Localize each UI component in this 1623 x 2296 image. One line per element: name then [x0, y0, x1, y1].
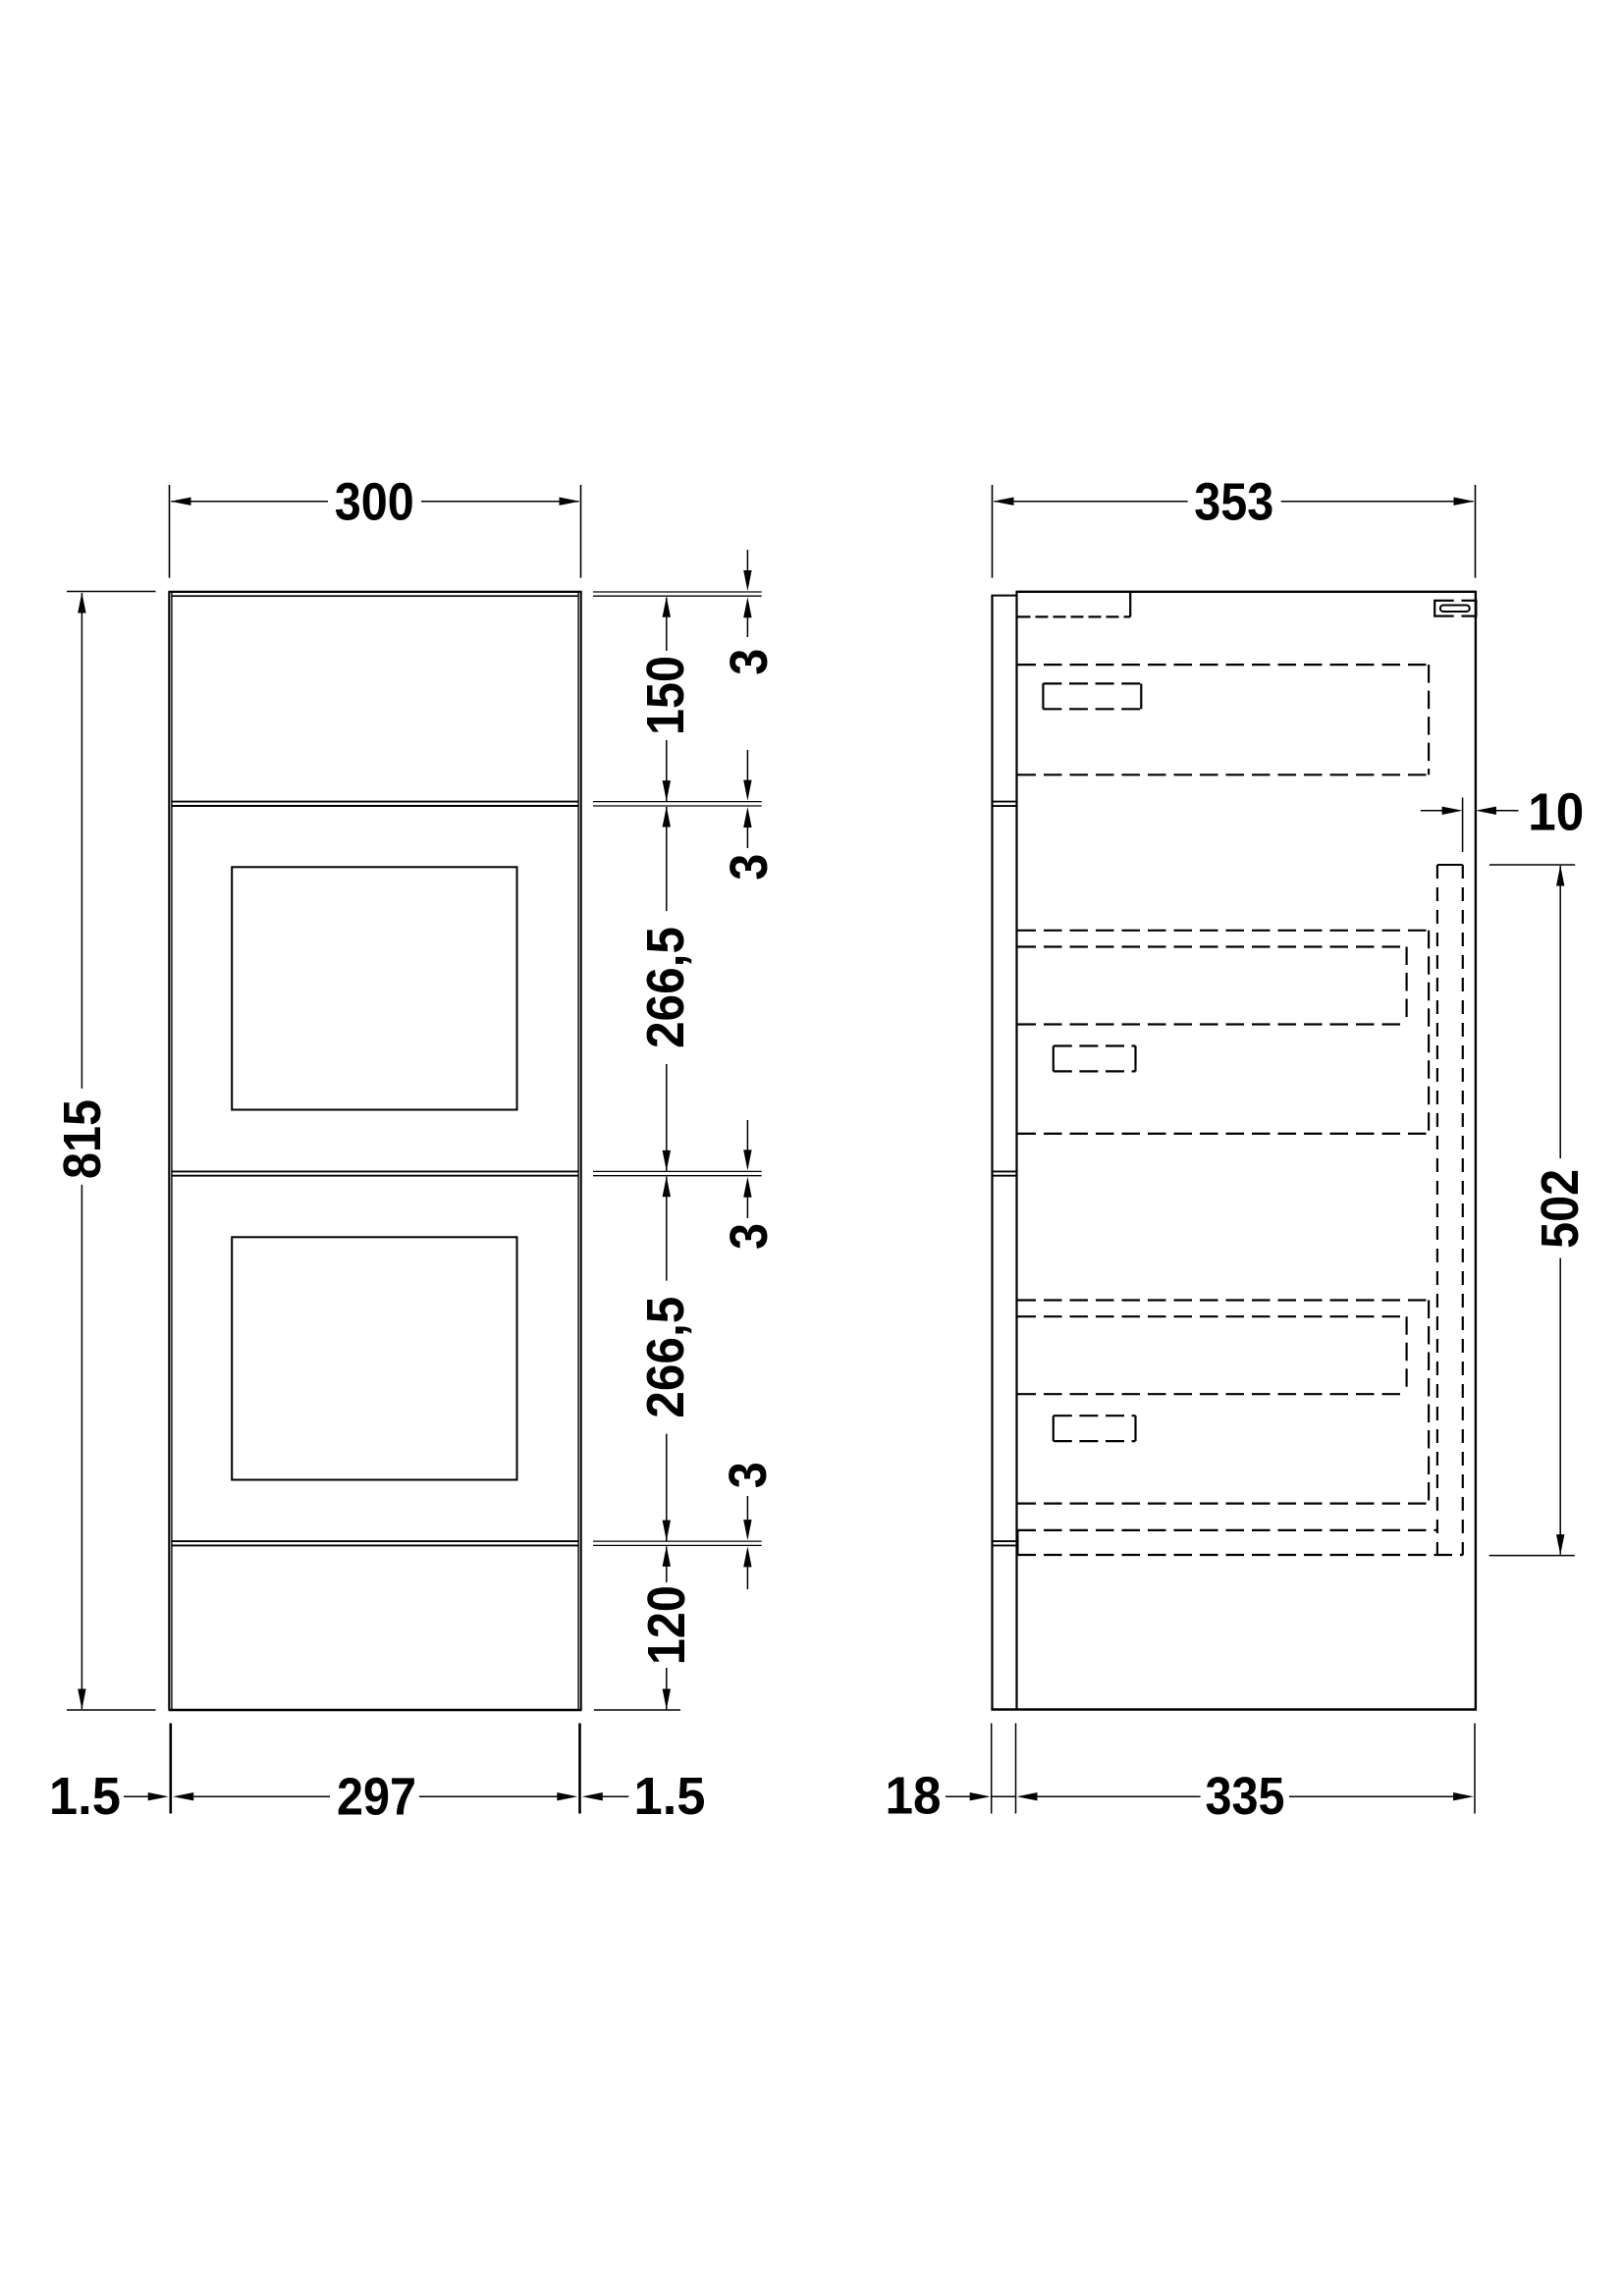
svg-text:297: 297 — [337, 1768, 416, 1826]
svg-text:353: 353 — [1194, 473, 1273, 531]
svg-text:10: 10 — [1528, 783, 1584, 841]
svg-text:1.5: 1.5 — [49, 1768, 121, 1826]
svg-text:1.5: 1.5 — [634, 1768, 706, 1826]
svg-text:335: 335 — [1206, 1768, 1285, 1826]
svg-text:266,5: 266,5 — [637, 1297, 695, 1418]
svg-text:300: 300 — [335, 473, 414, 531]
svg-text:3: 3 — [721, 854, 779, 881]
svg-text:502: 502 — [1532, 1169, 1590, 1249]
svg-text:3: 3 — [720, 1462, 778, 1488]
svg-text:815: 815 — [54, 1099, 112, 1179]
svg-text:150: 150 — [637, 656, 695, 735]
svg-text:266,5: 266,5 — [637, 927, 695, 1048]
svg-text:120: 120 — [638, 1585, 696, 1665]
svg-text:3: 3 — [721, 649, 779, 675]
svg-text:3: 3 — [721, 1223, 779, 1250]
svg-text:18: 18 — [886, 1767, 942, 1825]
